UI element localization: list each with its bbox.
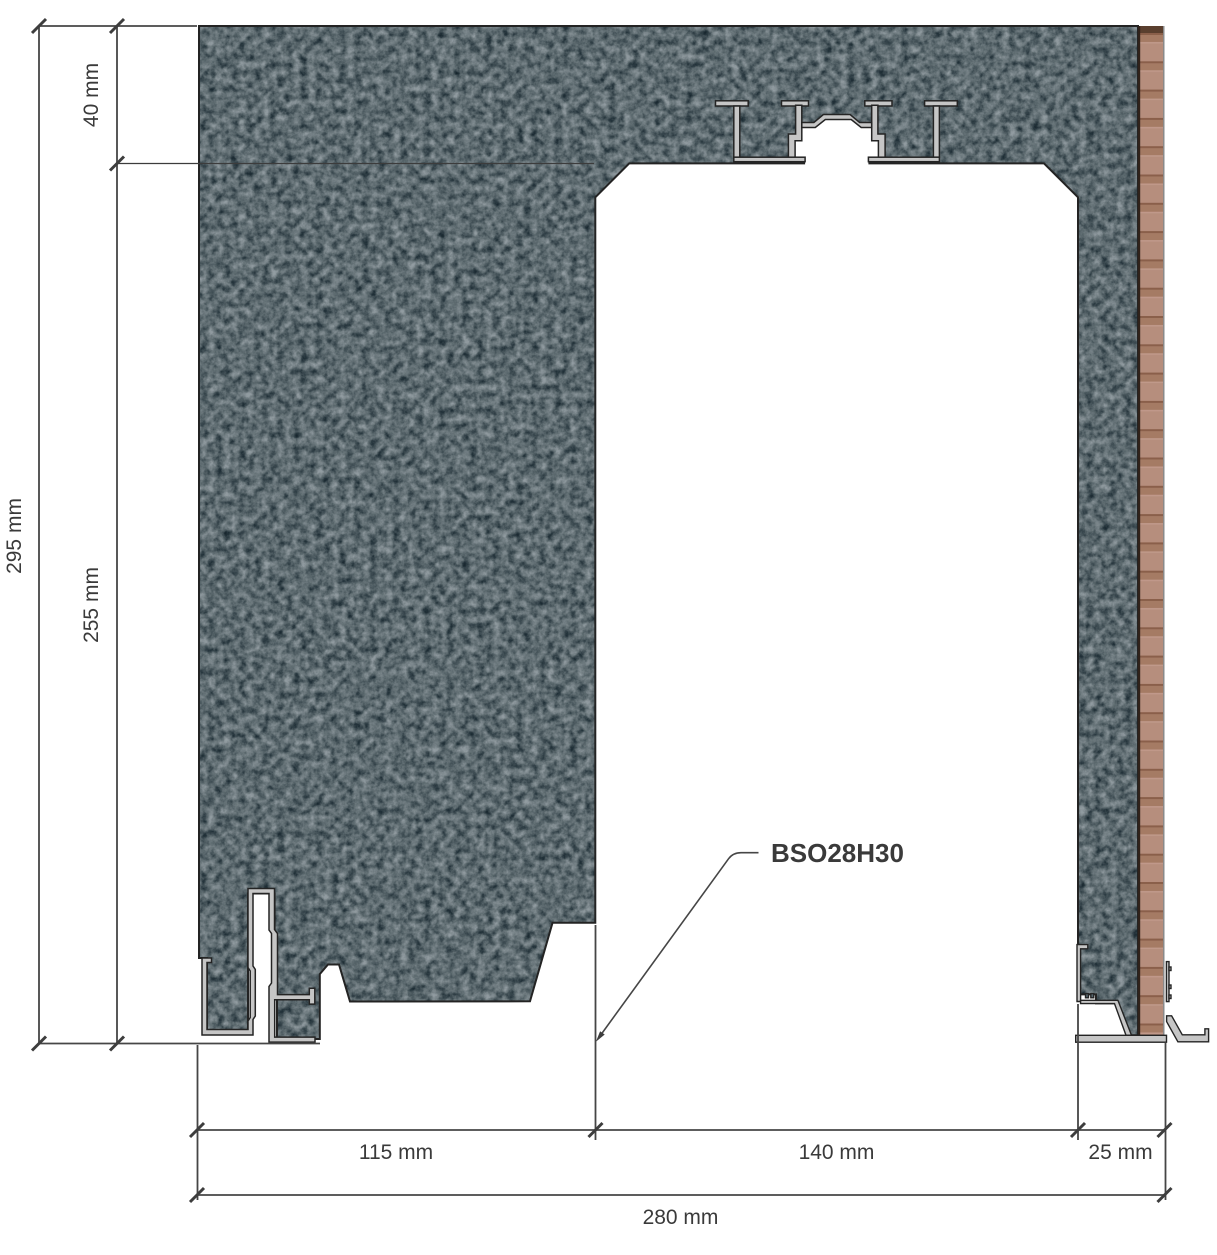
svg-text:255 mm: 255 mm [80,567,103,643]
svg-text:280 mm: 280 mm [643,1206,719,1229]
svg-text:25 mm: 25 mm [1088,1141,1152,1164]
svg-text:115 mm: 115 mm [359,1141,433,1164]
svg-text:BSO28H30: BSO28H30 [771,838,904,868]
svg-text:140 mm: 140 mm [799,1141,875,1164]
svg-text:40 mm: 40 mm [80,63,103,127]
svg-text:295 mm: 295 mm [3,498,26,574]
